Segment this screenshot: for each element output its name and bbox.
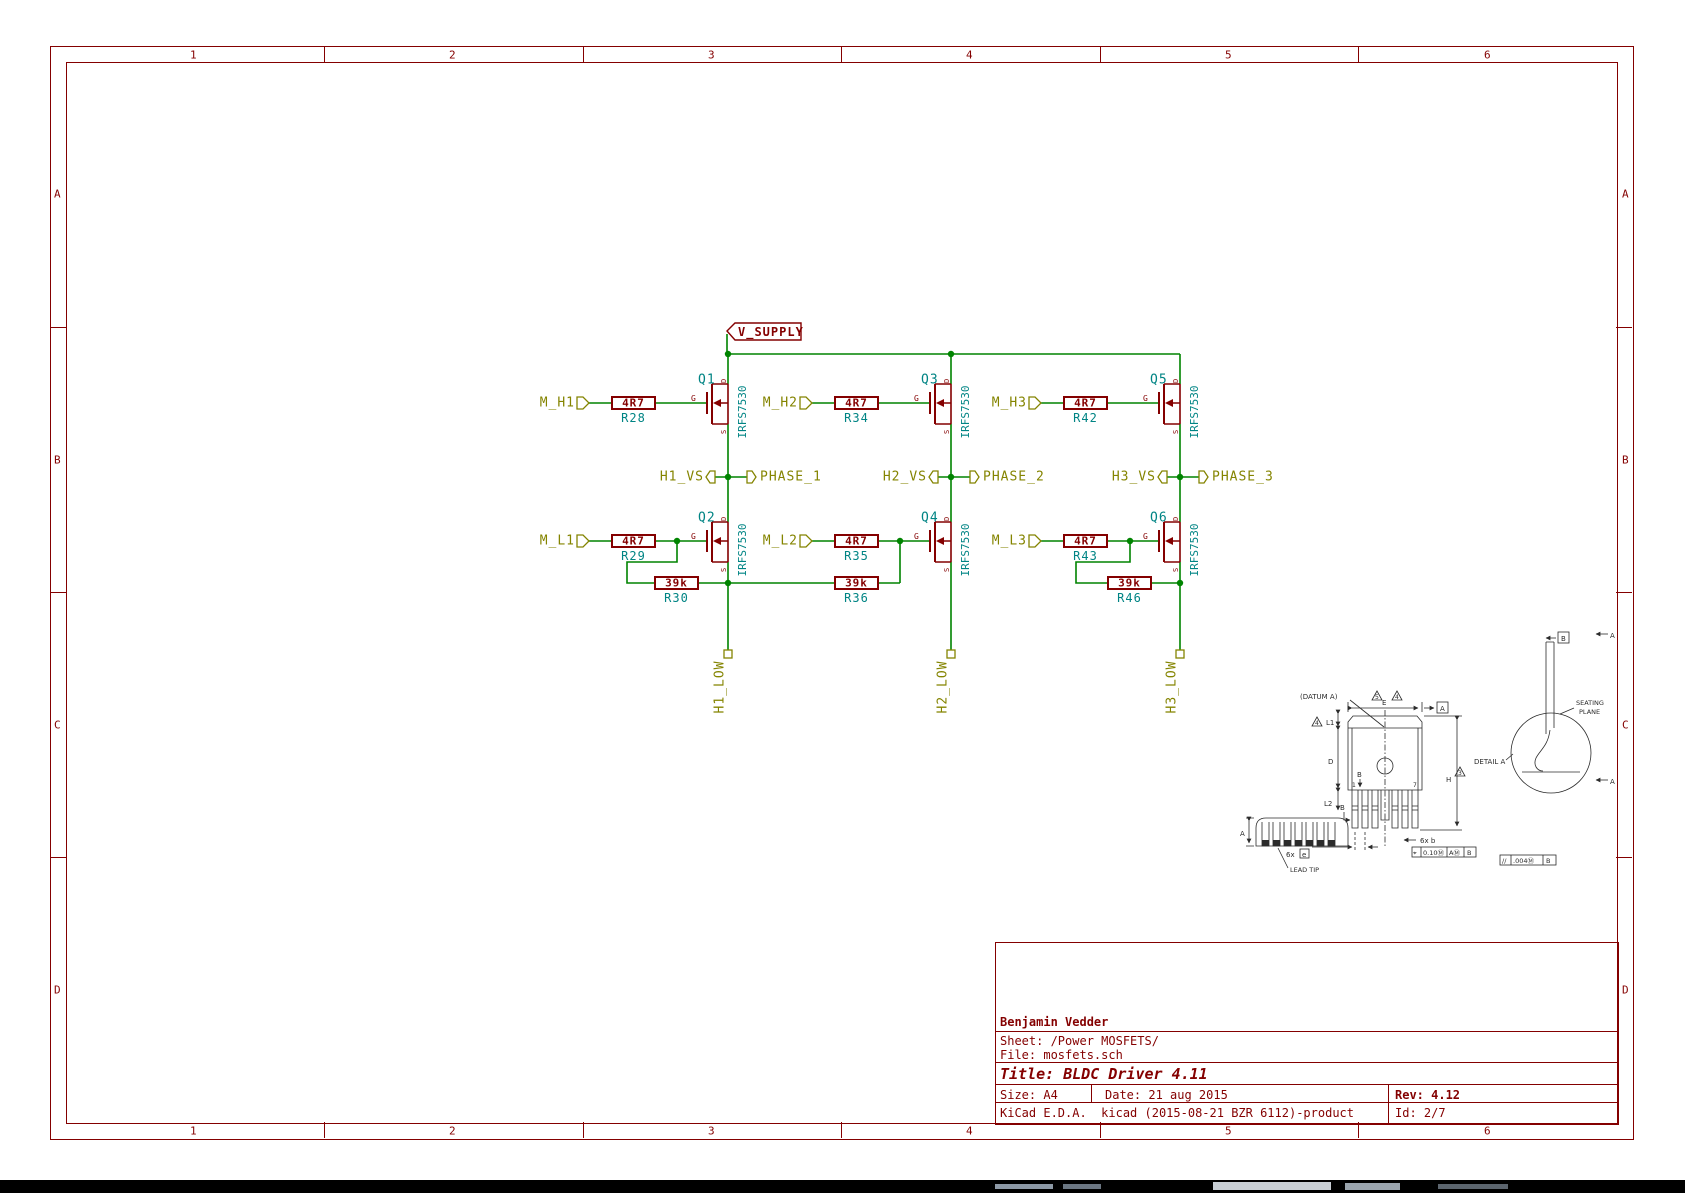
taskbar-glyphs	[1438, 1184, 1508, 1189]
eeschema-sheet: 1 2 3 4 5 6 1 2 3 4 5 6 A B C D A B C D	[0, 0, 1685, 1193]
mosfet-value[interactable]: IRFS7530	[1189, 521, 1201, 579]
resistor-ref[interactable]: R36	[835, 592, 878, 604]
svg-text:6x b: 6x b	[1420, 837, 1436, 845]
global-label-v-supply[interactable]: V_SUPPLY	[738, 326, 804, 338]
title-block-title: Title: BLDC Driver 4.11	[1000, 1067, 1208, 1082]
svg-text:G: G	[1143, 532, 1148, 541]
svg-text:e: e	[1302, 851, 1306, 859]
svg-text:S: S	[720, 568, 728, 572]
hier-label-glyph	[947, 650, 955, 658]
hier-label-glyph	[577, 397, 589, 409]
hier-label-h2-low[interactable]: H2_LOW	[937, 661, 950, 719]
hier-label-m-h2[interactable]: M_H2	[728, 397, 798, 410]
half-bridge-2[interactable]: G D S G D S	[800, 354, 979, 658]
hier-label-phase-1[interactable]: PHASE_1	[760, 471, 822, 484]
resistor-ref[interactable]: R28	[612, 412, 655, 424]
title-block-sheet: Sheet: /Power MOSFETS/	[1000, 1035, 1159, 1047]
svg-text:E: E	[1382, 699, 1386, 707]
svg-text:0.10Ⓜ: 0.10Ⓜ	[1423, 849, 1444, 857]
hier-label-h3-vs[interactable]: H3_VS	[1086, 471, 1156, 484]
svg-text:L1: L1	[1326, 719, 1334, 727]
hier-label-glyph	[706, 471, 715, 483]
svg-text:A: A	[1610, 632, 1615, 640]
mosfet-ref[interactable]: Q3	[921, 374, 939, 387]
taskbar-glyphs	[995, 1184, 1053, 1189]
resistor-ref[interactable]: R46	[1108, 592, 1151, 604]
svg-text:6x: 6x	[1286, 851, 1295, 859]
svg-text:S: S	[943, 430, 951, 434]
svg-text:B: B	[1357, 771, 1362, 779]
mosfet-value[interactable]: IRFS7530	[1189, 383, 1201, 441]
resistor-ref[interactable]: R42	[1064, 412, 1107, 424]
svg-text:A: A	[1240, 830, 1245, 838]
taskbar-glyphs	[1345, 1183, 1400, 1190]
mosfet-value[interactable]: IRFS7530	[737, 521, 749, 579]
hier-label-m-l1[interactable]: M_L1	[505, 535, 575, 548]
title-block-rev: Rev: 4.12	[1395, 1089, 1460, 1101]
mosfet-ref[interactable]: Q5	[1150, 374, 1168, 387]
hier-label-h1-low[interactable]: H1_LOW	[714, 661, 727, 719]
svg-text:4: 4	[1395, 694, 1399, 701]
mosfet-ref[interactable]: Q1	[698, 374, 716, 387]
svg-text:DETAIL A: DETAIL A	[1474, 758, 1506, 766]
hier-label-glyph	[1029, 397, 1041, 409]
resistor-value[interactable]: 4R7	[612, 536, 655, 547]
hier-label-glyph	[1158, 471, 1167, 483]
taskbar-strip[interactable]	[0, 1180, 1685, 1193]
resistor-ref[interactable]: R34	[835, 412, 878, 424]
resistor-value[interactable]: 39k	[835, 578, 878, 589]
mosfet-value[interactable]: IRFS7530	[737, 383, 749, 441]
package-mechanical-drawing: E A (DATUM A) 5 4 4 L1 D L2 B B	[1240, 632, 1615, 874]
hier-label-glyph	[1029, 535, 1041, 547]
hier-label-glyph	[577, 535, 589, 547]
hier-label-glyph	[800, 397, 812, 409]
hier-label-phase-2[interactable]: PHASE_2	[983, 471, 1045, 484]
taskbar-glyphs	[1213, 1182, 1331, 1190]
svg-text:A: A	[1440, 705, 1445, 713]
mosfet-ref[interactable]: Q4	[921, 512, 939, 525]
resistor-value[interactable]: 39k	[655, 578, 698, 589]
svg-text:D: D	[1328, 758, 1333, 766]
resistor-value[interactable]: 4R7	[835, 398, 878, 409]
svg-text:(DATUM A): (DATUM A)	[1300, 693, 1338, 701]
svg-text:7: 7	[1413, 782, 1417, 789]
hier-label-glyph	[1199, 471, 1208, 483]
svg-text:B: B	[1546, 857, 1550, 865]
svg-text:D: D	[1172, 517, 1180, 521]
svg-text:G: G	[914, 394, 919, 403]
hier-label-h3-low[interactable]: H3_LOW	[1166, 661, 1179, 719]
svg-text:L2: L2	[1324, 800, 1332, 808]
hier-label-glyph	[724, 650, 732, 658]
resistor-ref[interactable]: R35	[835, 550, 878, 562]
hier-label-m-l2[interactable]: M_L2	[728, 535, 798, 548]
svg-text:B: B	[1467, 849, 1471, 857]
svg-text:5: 5	[1375, 694, 1379, 701]
resistor-value[interactable]: 4R7	[1064, 536, 1107, 547]
svg-text:D: D	[720, 517, 728, 521]
hier-label-glyph	[929, 471, 938, 483]
svg-text:B: B	[1340, 804, 1345, 812]
svg-text:A: A	[1610, 778, 1615, 786]
svg-text:D: D	[720, 379, 728, 383]
mosfet-value[interactable]: IRFS7530	[960, 383, 972, 441]
resistor-ref[interactable]: R43	[1064, 550, 1107, 562]
half-bridge-3[interactable]: G D S G D S	[1029, 354, 1208, 658]
svg-text:G: G	[914, 532, 919, 541]
svg-text:S: S	[1172, 568, 1180, 572]
resistor-ref[interactable]: R30	[655, 592, 698, 604]
hier-label-glyph	[800, 535, 812, 547]
svg-text:4: 4	[1315, 720, 1319, 727]
svg-text:.004Ⓜ: .004Ⓜ	[1513, 857, 1534, 865]
svg-text:SEATING: SEATING	[1576, 699, 1604, 707]
mosfet-value[interactable]: IRFS7530	[960, 521, 972, 579]
resistor-value[interactable]: 4R7	[612, 398, 655, 409]
svg-text:D: D	[1172, 379, 1180, 383]
hier-label-m-h3[interactable]: M_H3	[957, 397, 1027, 410]
svg-text:G: G	[1143, 394, 1148, 403]
svg-text:1: 1	[1352, 782, 1356, 789]
taskbar-glyphs	[1063, 1184, 1101, 1189]
svg-text:D: D	[943, 379, 951, 383]
title-block-date: Date: 21 aug 2015	[1105, 1089, 1228, 1101]
svg-text:G: G	[691, 394, 696, 403]
title-block-id: Id: 2/7	[1395, 1107, 1446, 1119]
title-block-tool: KiCad E.D.A. kicad (2015-08-21 BZR 6112)…	[1000, 1107, 1354, 1119]
svg-text://: //	[1502, 857, 1507, 865]
hier-label-glyph	[970, 471, 979, 483]
resistor-value[interactable]: 4R7	[1064, 398, 1107, 409]
mosfet-ref[interactable]: Q2	[698, 512, 716, 525]
svg-text:D: D	[943, 517, 951, 521]
title-block-author: Benjamin Vedder	[1000, 1016, 1108, 1028]
hier-label-h2-vs[interactable]: H2_VS	[857, 471, 927, 484]
svg-text:S: S	[1172, 430, 1180, 434]
svg-text:⌖: ⌖	[1413, 849, 1417, 857]
mosfet-ref[interactable]: Q6	[1150, 512, 1168, 525]
svg-text:AⓂ: AⓂ	[1449, 849, 1460, 857]
title-block-file: File: mosfets.sch	[1000, 1049, 1123, 1061]
resistor-ref[interactable]: R29	[612, 550, 655, 562]
hier-label-glyph	[1176, 650, 1184, 658]
svg-text:3: 3	[1458, 770, 1462, 777]
svg-text:G: G	[691, 532, 696, 541]
svg-text:B: B	[1561, 635, 1566, 643]
svg-text:S: S	[943, 568, 951, 572]
title-block-size: Size: A4	[1000, 1089, 1058, 1101]
hier-label-m-l3[interactable]: M_L3	[957, 535, 1027, 548]
resistor-value[interactable]: 4R7	[835, 536, 878, 547]
svg-text:H: H	[1446, 776, 1451, 784]
hier-label-h1-vs[interactable]: H1_VS	[634, 471, 704, 484]
hier-label-glyph	[747, 471, 756, 483]
hier-label-phase-3[interactable]: PHASE_3	[1212, 471, 1274, 484]
svg-text:LEAD TIP: LEAD TIP	[1290, 866, 1319, 874]
hier-label-m-h1[interactable]: M_H1	[505, 397, 575, 410]
svg-text:PLANE: PLANE	[1579, 708, 1600, 716]
resistor-value[interactable]: 39k	[1108, 578, 1151, 589]
svg-text:S: S	[720, 430, 728, 434]
